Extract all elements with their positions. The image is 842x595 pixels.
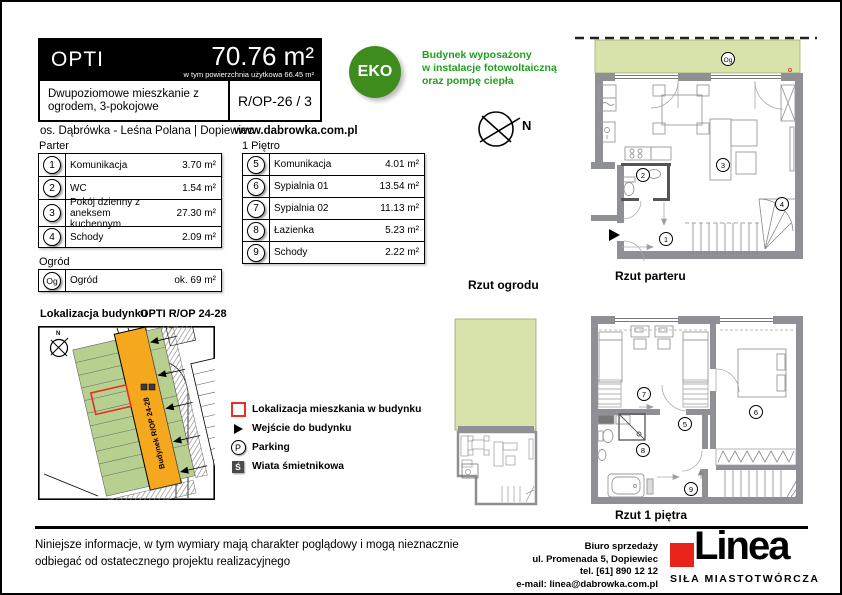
room-number-badge: 8 xyxy=(247,222,265,240)
flyer-page: OPTI 70.76 m² w tym powierzchnia użytkow… xyxy=(0,0,842,595)
total-area: 70.76 m² xyxy=(211,41,314,72)
sales-office-info: Biuro sprzedaży ul. Promenada 5, Dopiewi… xyxy=(462,541,658,591)
room-name: Sypialnia 01 xyxy=(270,180,367,193)
room-area: 11.13 m² xyxy=(367,203,424,214)
ogrod-table-title: Ogród xyxy=(39,256,70,268)
table-row: 3 Pokój dzienny z aneksem kuchennym 27.3… xyxy=(39,200,221,227)
sofa xyxy=(710,119,757,180)
room-area: ok. 69 m² xyxy=(164,275,221,286)
footer-divider xyxy=(35,526,808,529)
room-name: Łazienka xyxy=(270,224,367,237)
table-row: 7 Sypialnia 02 11.13 m² xyxy=(243,198,424,220)
legend-item: Wejście do budynku xyxy=(230,419,421,438)
header-box: OPTI 70.76 m² w tym powierzchnia użytkow… xyxy=(38,38,322,122)
legend-label: Wiata śmietnikowa xyxy=(252,461,344,472)
room-name: Pokój dzienny z aneksem kuchennym xyxy=(66,196,164,231)
eko-badge-label: EKO xyxy=(358,63,393,81)
mini-house-outline xyxy=(458,432,536,504)
table-row: 1 Komunikacja 3.70 m² xyxy=(39,154,221,177)
apartment-description: Dwupoziomowe mieszkanie z ogrodem, 3-pok… xyxy=(40,81,230,120)
walls xyxy=(591,316,803,504)
room-number-badge: 7 xyxy=(247,200,265,218)
room-area: 5.23 m² xyxy=(367,225,424,236)
room-area: 2.22 m² xyxy=(367,247,424,258)
header-black-band: OPTI 70.76 m² w tym powierzchnia użytkow… xyxy=(40,40,320,81)
usable-area-note: w tym powierzchnia użytkowa 66.45 m² xyxy=(184,70,314,79)
header-info-row: Dwupoziomowe mieszkanie z ogrodem, 3-pok… xyxy=(40,81,320,120)
table-row: 8 Łazienka 5.23 m² xyxy=(243,220,424,242)
table-row: 6 Sypialnia 01 13.54 m² xyxy=(243,176,424,198)
office-address: ul. Promenada 5, Dopiewiec xyxy=(462,554,658,567)
entrance-arrow-icon xyxy=(609,229,620,241)
disclaimer-line-1: Niniejsze informacje, w tym wymiary mają… xyxy=(35,537,459,554)
site-map: Budynek R/OP 24-28 xyxy=(38,326,215,500)
room-7-label: 7 xyxy=(642,390,646,399)
first-floor-plan: 5 6 7 8 9 xyxy=(579,309,811,507)
garden-label: Og xyxy=(724,57,733,64)
room-area: 4.01 m² xyxy=(367,159,424,170)
logo-red-square xyxy=(670,543,694,567)
estate-location: os. Dąbrówka - Leśna Polana | Dopiewiec xyxy=(40,125,253,137)
disclaimer-line-2: odbiegać od ostatecznego projektu realiz… xyxy=(35,554,459,571)
room-name: Komunikacja xyxy=(270,158,367,171)
room-name: Komunikacja xyxy=(66,159,164,172)
room-name: Sypialnia 02 xyxy=(270,202,367,215)
table-row: 5 Komunikacja 4.01 m² xyxy=(243,154,424,176)
legend-label: Parking xyxy=(252,442,290,453)
legend-label: Wejście do budynku xyxy=(252,423,351,434)
room-number-badge: 9 xyxy=(247,244,265,262)
ogrod-table: Og Ogród ok. 69 m² xyxy=(38,269,222,292)
apartment-location-icon xyxy=(231,402,246,417)
unit-code: R/OP-26 / 3 xyxy=(230,81,320,120)
disclaimer-text: Niniejsze informacje, w tym wymiary mają… xyxy=(35,537,459,570)
garden-plan-caption: Rzut ogrodu xyxy=(468,278,539,292)
room-number-badge: 4 xyxy=(43,228,61,246)
room-4-label: 4 xyxy=(780,200,784,209)
eko-badge: EKO xyxy=(349,46,401,98)
ground-plan-caption: Rzut parteru xyxy=(615,269,686,283)
stairs xyxy=(699,469,802,497)
bedroom-02-furniture xyxy=(599,326,708,382)
legend-item: P Parking xyxy=(230,438,421,457)
table-row: Og Ogród ok. 69 m² xyxy=(39,270,221,291)
room-1-label: 1 xyxy=(664,235,668,244)
room-5-label: 5 xyxy=(683,420,687,429)
office-email[interactable]: e-mail: linea@dabrowka.com.pl xyxy=(462,579,658,592)
logo-tagline: SIŁA MIASTOTWÓRCZA xyxy=(670,573,820,585)
wardrobe xyxy=(781,85,795,171)
office-phone[interactable]: tel. [61] 890 12 12 xyxy=(462,566,658,579)
website-link[interactable]: www.dabrowka.com.pl xyxy=(234,125,358,137)
legend-item: Lokalizacja mieszkania w budynku xyxy=(230,400,421,419)
room-number-badge: 1 xyxy=(43,156,61,174)
room-number-badge: 5 xyxy=(247,156,265,174)
room-area: 27.30 m² xyxy=(164,208,221,219)
radiator-band xyxy=(716,449,796,465)
room-name: Schody xyxy=(66,231,164,244)
dining-table xyxy=(653,85,709,134)
table-row: 9 Schody 2.22 m² xyxy=(243,242,424,263)
room-number-badge: 3 xyxy=(43,204,61,222)
room-area: 2.09 m² xyxy=(164,232,221,243)
room-labels: Og 1 2 3 4 xyxy=(637,53,789,246)
room-number-badge: 2 xyxy=(43,179,61,197)
room-8-label: 8 xyxy=(641,446,645,455)
office-title: Biuro sprzedaży xyxy=(462,541,658,554)
room-2-label: 2 xyxy=(641,171,645,180)
table-row: 4 Schody 2.09 m² xyxy=(39,227,221,247)
map-compass-north-label: N xyxy=(56,331,60,337)
site-map-title: Lokalizacja budynku xyxy=(40,308,148,320)
wardrobe-hatches xyxy=(598,380,708,407)
linea-logo: Linea SIŁA MIASTOTWÓRCZA xyxy=(666,533,812,589)
parter-table-title: Parter xyxy=(39,140,69,152)
parter-table: 1 Komunikacja 3.70 m² 2 WC 1.54 m² 3 Pok… xyxy=(38,153,222,248)
room-number-badge: Og xyxy=(43,272,61,290)
room-area: 1.54 m² xyxy=(164,183,221,194)
room-name: Ogród xyxy=(66,274,164,287)
legend-label: Lokalizacja mieszkania w budynku xyxy=(252,404,421,415)
room-3-label: 3 xyxy=(721,161,725,170)
logo-wordmark: Linea xyxy=(694,524,788,569)
pietro-table-title: 1 Piętro xyxy=(242,140,280,152)
room-name: Schody xyxy=(270,246,367,259)
room-name: WC xyxy=(66,182,164,195)
pietro-table: 5 Komunikacja 4.01 m² 6 Sypialnia 01 13.… xyxy=(242,153,425,264)
parking-icon: P xyxy=(231,440,246,455)
room-number-badge: 6 xyxy=(247,178,265,196)
apartment-name: OPTI xyxy=(51,48,104,72)
entrance-arrow-icon xyxy=(234,424,243,434)
compass-north-label: N xyxy=(522,118,531,133)
legend-item: Ś Wiata śmietnikowa xyxy=(230,457,421,476)
map-legend: Lokalizacja mieszkania w budynku Wejście… xyxy=(230,400,421,476)
room-6-label: 6 xyxy=(754,408,758,417)
room-area: 13.54 m² xyxy=(367,181,424,192)
compass-icon: N xyxy=(474,105,538,153)
site-map-building-code: OPTI R/OP 24-28 xyxy=(140,308,227,320)
room-area: 3.70 m² xyxy=(164,160,221,171)
room-9-label: 9 xyxy=(689,485,693,494)
ground-floor-plan: Og 1 2 3 4 xyxy=(569,27,819,267)
garden-area xyxy=(455,319,536,430)
garden-strip xyxy=(595,40,800,73)
first-plan-caption: Rzut 1 piętra xyxy=(615,508,687,522)
bin-shelter-icon: Ś xyxy=(232,461,244,473)
garden-plan xyxy=(450,314,545,509)
